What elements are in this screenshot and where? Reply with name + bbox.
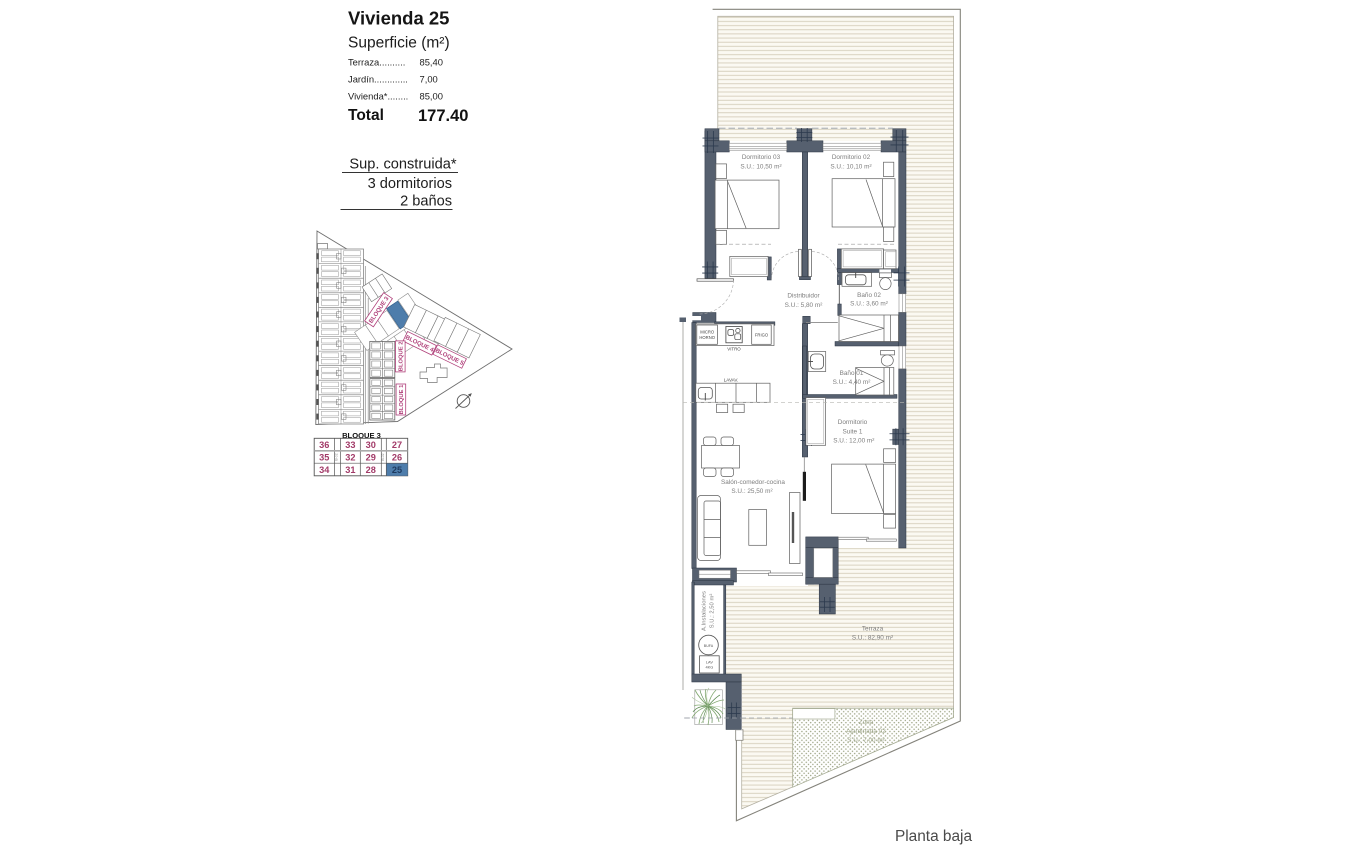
svg-text:35: 35 <box>319 453 329 463</box>
svg-text:Planta baja: Planta baja <box>895 828 972 845</box>
svg-text:Vivienda 25: Vivienda 25 <box>348 8 449 29</box>
svg-text:B-02: B-02 <box>334 453 338 460</box>
svg-text:30: 30 <box>366 440 376 450</box>
svg-text:Total: Total <box>348 107 384 124</box>
svg-text:27: 27 <box>392 440 402 450</box>
svg-text:S.U.: 2,50 m²: S.U.: 2,50 m² <box>710 594 716 629</box>
svg-text:25: 25 <box>392 465 402 475</box>
svg-text:S.U.: 82,90 m²: S.U.: 82,90 m² <box>852 635 893 642</box>
svg-text:4KG: 4KG <box>706 665 714 670</box>
svg-text:28: 28 <box>366 465 376 475</box>
svg-text:33: 33 <box>345 440 355 450</box>
svg-text:7,00: 7,00 <box>420 74 438 85</box>
svg-text:S.U.: 4,40 m²: S.U.: 4,40 m² <box>833 379 871 386</box>
svg-text:S.U.: 12,00 m²: S.U.: 12,00 m² <box>833 438 874 445</box>
svg-text:MICRO: MICRO <box>700 330 715 335</box>
svg-text:Dormitorio 02: Dormitorio 02 <box>832 154 871 161</box>
svg-text:BLOQUE 1: BLOQUE 1 <box>399 384 405 414</box>
svg-text:Salón-comedor-cocina: Salón-comedor-cocina <box>721 479 785 486</box>
svg-text:2 baños: 2 baños <box>400 194 452 210</box>
svg-text:S.U.: 3,60 m²: S.U.: 3,60 m² <box>850 301 888 308</box>
svg-text:S.U.: 10,50 m²: S.U.: 10,50 m² <box>740 164 781 171</box>
svg-text:177.40: 177.40 <box>418 107 468 125</box>
svg-text:Zona: Zona <box>859 719 874 726</box>
svg-text:85,40: 85,40 <box>420 57 443 68</box>
svg-text:BUFA: BUFA <box>704 644 714 648</box>
svg-text:S.U.: 10,10 m²: S.U.: 10,10 m² <box>830 164 871 171</box>
svg-text:A.Instalaciones: A.Instalaciones <box>702 591 708 631</box>
svg-text:Dormitorio: Dormitorio <box>838 419 868 426</box>
svg-text:Distribuidor: Distribuidor <box>787 293 820 300</box>
svg-text:Suite 1: Suite 1 <box>843 428 863 435</box>
svg-text:Superficie (m²): Superficie (m²) <box>348 35 450 52</box>
svg-text:Sup. construida*: Sup. construida* <box>349 157 456 173</box>
svg-text:34: 34 <box>319 465 330 475</box>
svg-text:S.U.: 25,50 m²: S.U.: 25,50 m² <box>731 488 772 495</box>
svg-text:HORNO: HORNO <box>699 335 715 340</box>
svg-text:32: 32 <box>345 453 355 463</box>
svg-text:Terraza: Terraza <box>862 626 884 633</box>
svg-text:Dormitorio 03: Dormitorio 03 <box>742 154 781 161</box>
svg-text:26: 26 <box>392 453 402 463</box>
svg-text:BLOQUE 2: BLOQUE 2 <box>398 342 404 372</box>
svg-text:3 dormitorios: 3 dormitorios <box>368 176 452 192</box>
svg-text:FRIGO: FRIGO <box>755 333 769 338</box>
svg-text:Vivienda*........: Vivienda*........ <box>348 91 408 102</box>
svg-text:Terraza..........: Terraza.......... <box>348 57 405 68</box>
svg-text:S.U.: 7,00 m²: S.U.: 7,00 m² <box>847 737 885 744</box>
svg-text:31: 31 <box>345 465 355 475</box>
svg-text:LAVAV.: LAVAV. <box>724 378 739 383</box>
svg-text:VITRO: VITRO <box>727 347 741 352</box>
svg-text:Baño 02: Baño 02 <box>857 292 881 299</box>
svg-text:B-02: B-02 <box>381 453 385 460</box>
svg-text:29: 29 <box>366 453 376 463</box>
svg-text:85,00: 85,00 <box>420 91 443 102</box>
svg-text:Ajardinada 02: Ajardinada 02 <box>846 728 886 735</box>
svg-text:Jardín.............: Jardín............. <box>348 74 408 85</box>
svg-text:36: 36 <box>319 440 329 450</box>
svg-text:Baño 01: Baño 01 <box>840 370 864 377</box>
svg-text:S.U.: 5,80 m²: S.U.: 5,80 m² <box>785 302 823 309</box>
